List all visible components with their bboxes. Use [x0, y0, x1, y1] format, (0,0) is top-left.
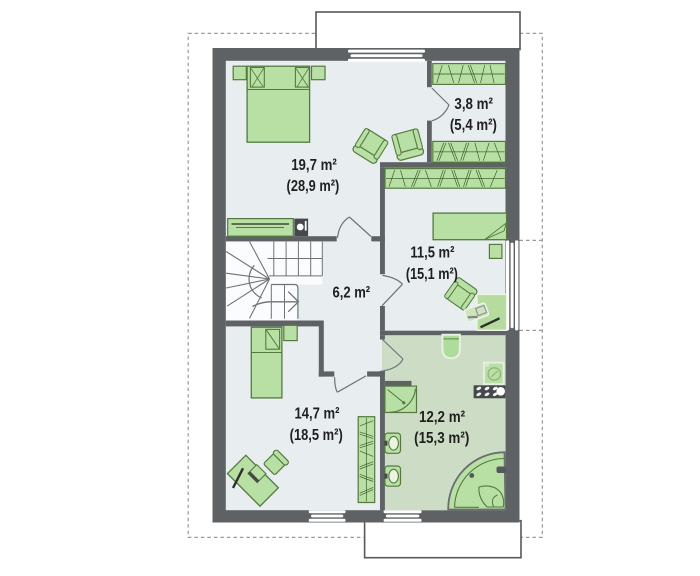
svg-text:(5,4 m²): (5,4 m²): [450, 117, 497, 134]
svg-text:12,2 m²: 12,2 m²: [419, 409, 465, 426]
svg-text:19,7 m²: 19,7 m²: [291, 157, 337, 174]
svg-text:(28,9 m²): (28,9 m²): [287, 178, 340, 195]
svg-text:(15,3 m²): (15,3 m²): [414, 430, 469, 447]
svg-text:6,2 m²: 6,2 m²: [332, 285, 370, 302]
svg-text:(18,5 m²): (18,5 m²): [290, 427, 343, 444]
svg-text:3,8 m²: 3,8 m²: [454, 96, 493, 113]
svg-text:14,7 m²: 14,7 m²: [295, 405, 340, 422]
svg-text:11,5 m²: 11,5 m²: [410, 245, 454, 262]
svg-text:(15,1 m²): (15,1 m²): [406, 266, 458, 283]
